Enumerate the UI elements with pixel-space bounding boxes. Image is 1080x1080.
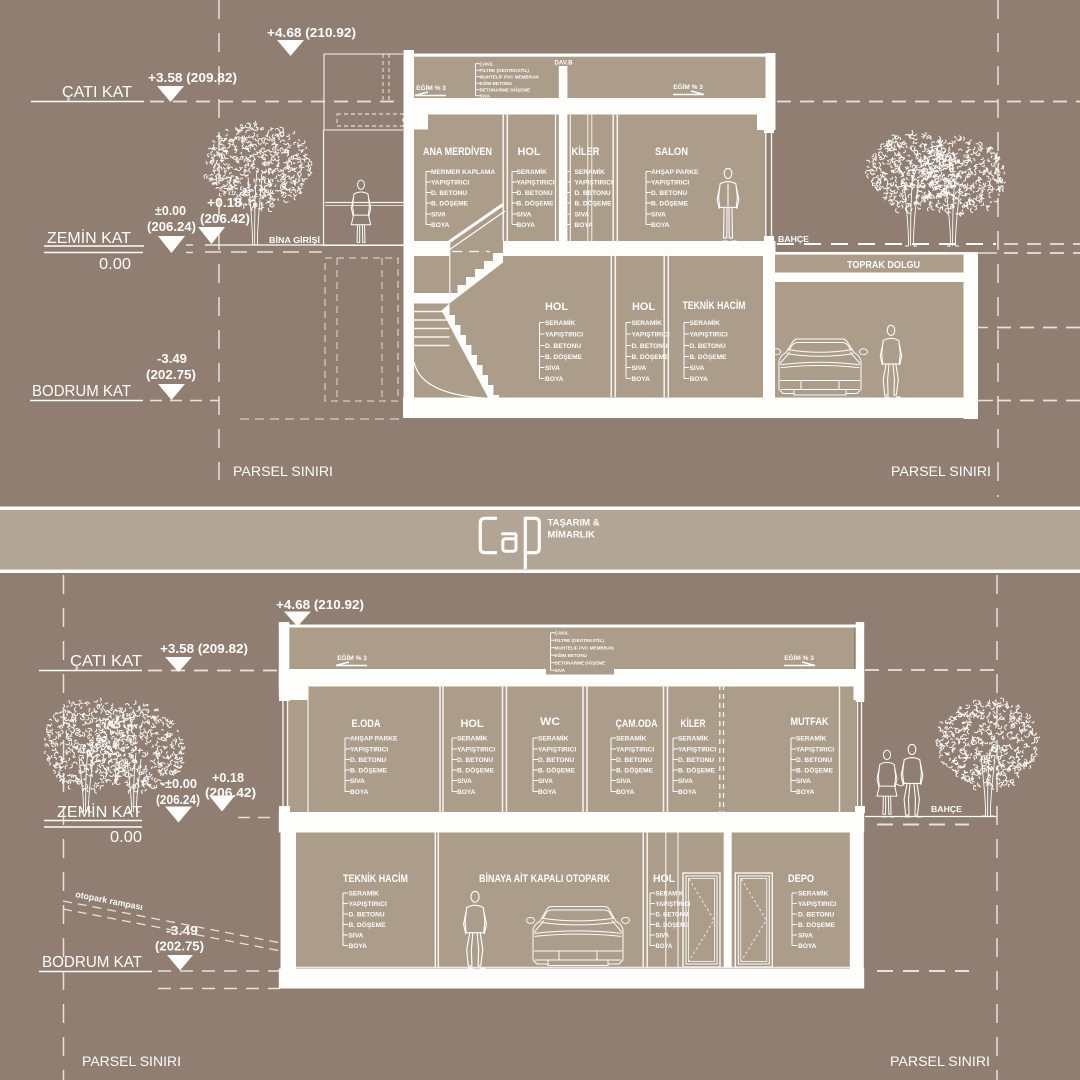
- svg-text:SIVA: SIVA: [545, 365, 560, 372]
- svg-text:B. DÖŞEME: B. DÖŞEME: [538, 766, 576, 775]
- svg-text:SIVA: SIVA: [457, 778, 472, 785]
- svg-text:ÇATI KAT: ÇATI KAT: [62, 84, 133, 101]
- svg-text:SIVA: SIVA: [480, 94, 491, 99]
- svg-text:ÇAKIL: ÇAKIL: [480, 62, 494, 67]
- svg-text:YAPIŞTIRICI: YAPIŞTIRICI: [798, 901, 836, 908]
- svg-text:(206.42): (206.42): [200, 211, 250, 226]
- svg-text:SIVA: SIVA: [350, 778, 365, 785]
- svg-text:BOYA: BOYA: [431, 222, 450, 229]
- svg-text:BOYA: BOYA: [678, 789, 697, 796]
- svg-text:SERAMİK: SERAMİK: [517, 168, 548, 176]
- svg-text:HOL: HOL: [545, 301, 568, 313]
- svg-text:SERAMİK: SERAMİK: [349, 890, 380, 898]
- svg-text:BOYA: BOYA: [517, 222, 536, 229]
- svg-text:FİLTRE (GEOTEKSTİL): FİLTRE (GEOTEKSTİL): [555, 637, 605, 643]
- svg-text:EĞİM % 3: EĞİM % 3: [416, 83, 446, 92]
- svg-text:HOL: HOL: [518, 146, 541, 158]
- svg-text:B. DÖŞEME: B. DÖŞEME: [656, 922, 690, 929]
- svg-text:MUTFAK: MUTFAK: [791, 716, 829, 728]
- svg-text:PARSEL SINIRI: PARSEL SINIRI: [82, 1053, 181, 1069]
- svg-text:B. DÖŞEME: B. DÖŞEME: [349, 920, 387, 929]
- svg-text:FİLTRE (GEOTEKSTİL): FİLTRE (GEOTEKSTİL): [480, 67, 530, 73]
- svg-text:BOYA: BOYA: [651, 222, 670, 229]
- svg-text:+4.68 (210.92): +4.68 (210.92): [267, 25, 356, 40]
- svg-text:PARSEL SINIRI: PARSEL SINIRI: [891, 463, 991, 479]
- svg-text:BAHÇE: BAHÇE: [931, 804, 962, 814]
- svg-text:SERAMİK: SERAMİK: [457, 735, 488, 743]
- svg-text:EĞİM % 3: EĞİM % 3: [784, 653, 814, 662]
- svg-text:YAPIŞTIRICI: YAPIŞTIRICI: [678, 747, 716, 754]
- svg-text:D. BETONU: D. BETONU: [690, 343, 726, 350]
- svg-text:SIVA: SIVA: [517, 212, 532, 219]
- svg-text:B. DÖŞEME: B. DÖŞEME: [457, 766, 495, 775]
- svg-text:BİNA GİRİŞİ: BİNA GİRİŞİ: [269, 235, 320, 245]
- svg-text:SERAMİK: SERAMİK: [545, 319, 576, 327]
- svg-text:+3.58 (209.82): +3.58 (209.82): [148, 70, 237, 85]
- svg-text:±0.00: ±0.00: [165, 776, 197, 791]
- svg-text:TEKNİK HACİM: TEKNİK HACİM: [343, 872, 408, 885]
- svg-text:YAPIŞTIRICI: YAPIŞTIRICI: [517, 180, 555, 187]
- svg-text:SIVA: SIVA: [656, 934, 670, 940]
- svg-text:0.00: 0.00: [110, 829, 142, 846]
- svg-text:D. BETONU: D. BETONU: [538, 757, 574, 764]
- svg-text:SERAMİK: SERAMİK: [656, 891, 684, 898]
- svg-text:BOYA: BOYA: [349, 943, 368, 950]
- svg-text:BOYA: BOYA: [616, 789, 635, 796]
- svg-text:(206.24): (206.24): [147, 219, 196, 234]
- svg-text:YAPIŞTIRICI: YAPIŞTIRICI: [349, 901, 387, 908]
- svg-text:SERAMİK: SERAMİK: [575, 168, 606, 176]
- svg-text:D. BETONU: D. BETONU: [545, 343, 581, 350]
- svg-text:BETONARME DÖŞEME: BETONARME DÖŞEME: [480, 87, 531, 93]
- svg-text:D. BETONU: D. BETONU: [798, 912, 834, 919]
- svg-text:YAPIŞTIRICI: YAPIŞTIRICI: [651, 180, 689, 187]
- svg-text:D. BETONU: D. BETONU: [457, 757, 493, 764]
- svg-text:B. DÖŞEME: B. DÖŞEME: [616, 766, 654, 775]
- svg-text:SIVA: SIVA: [431, 212, 446, 219]
- svg-text:EĞİM BETONU: EĞİM BETONU: [480, 79, 513, 86]
- svg-text:D. BETONU: D. BETONU: [678, 757, 714, 764]
- svg-text:B. DÖŞEME: B. DÖŞEME: [545, 352, 583, 361]
- svg-text:D. BETONU: D. BETONU: [575, 190, 611, 197]
- svg-text:YAPIŞTIRICI: YAPIŞTIRICI: [616, 747, 654, 754]
- svg-text:YAPIŞTIRICI: YAPIŞTIRICI: [575, 180, 613, 187]
- svg-text:ZEMİN KAT: ZEMİN KAT: [47, 229, 132, 247]
- svg-text:SERAMİK: SERAMİK: [798, 890, 829, 898]
- svg-text:SIVA: SIVA: [690, 365, 705, 372]
- svg-text:D. BETONU: D. BETONU: [651, 190, 687, 197]
- svg-text:YAPIŞTIRICI: YAPIŞTIRICI: [457, 747, 495, 754]
- svg-text:BOYA: BOYA: [545, 376, 564, 383]
- svg-text:+3.58 (209.82): +3.58 (209.82): [160, 641, 248, 656]
- svg-text:ÇAKIL: ÇAKIL: [555, 631, 569, 636]
- svg-text:BOYA: BOYA: [796, 789, 815, 796]
- svg-text:SIVA: SIVA: [798, 933, 813, 940]
- svg-text:-3.49: -3.49: [166, 923, 198, 938]
- svg-text:MUHTELİF PVC MEMBRAN: MUHTELİF PVC MEMBRAN: [555, 645, 615, 651]
- svg-text:SERAMİK: SERAMİK: [678, 735, 709, 743]
- svg-text:ANA MERDİVEN: ANA MERDİVEN: [423, 145, 492, 158]
- svg-text:YAPIŞTIRICI: YAPIŞTIRICI: [545, 332, 583, 339]
- svg-text:SERAMİK: SERAMİK: [616, 735, 647, 743]
- svg-text:BOYA: BOYA: [350, 789, 369, 796]
- svg-text:ÇAM.ODA: ÇAM.ODA: [616, 718, 658, 730]
- svg-text:D. BETONU: D. BETONU: [796, 757, 832, 764]
- svg-text:KİLER: KİLER: [681, 717, 706, 730]
- svg-text:SIVA: SIVA: [678, 778, 693, 785]
- svg-text:B. DÖŞEME: B. DÖŞEME: [350, 766, 388, 775]
- svg-text:BOYA: BOYA: [575, 222, 594, 229]
- svg-text:+0.18: +0.18: [212, 770, 244, 785]
- svg-text:SIVA: SIVA: [796, 778, 811, 785]
- svg-text:D. BETONU: D. BETONU: [349, 912, 385, 919]
- svg-text:(202.75): (202.75): [155, 939, 204, 954]
- svg-text:D. BETONU: D. BETONU: [517, 190, 553, 197]
- svg-text:AHŞAP PARKE: AHŞAP PARKE: [651, 169, 699, 176]
- svg-text:B. DÖŞEME: B. DÖŞEME: [690, 352, 728, 361]
- svg-text:±0.00: ±0.00: [155, 203, 186, 218]
- svg-text:D. BETONU: D. BETONU: [350, 757, 386, 764]
- svg-text:EĞİM % 3: EĞİM % 3: [673, 82, 703, 91]
- svg-text:SALON: SALON: [655, 146, 688, 158]
- svg-text:DAV.B: DAV.B: [555, 60, 573, 67]
- svg-text:SERAMİK: SERAMİK: [796, 735, 827, 743]
- svg-text:BOYA: BOYA: [656, 944, 673, 950]
- svg-text:B. DÖŞEME: B. DÖŞEME: [678, 766, 716, 775]
- svg-text:E.ODA: E.ODA: [352, 718, 381, 730]
- svg-text:-3.49: -3.49: [157, 351, 187, 366]
- svg-text:SIVA: SIVA: [555, 668, 566, 673]
- svg-text:WC: WC: [540, 716, 560, 728]
- svg-text:0.00: 0.00: [99, 256, 131, 273]
- svg-text:PARSEL SINIRI: PARSEL SINIRI: [233, 463, 333, 479]
- svg-text:MERMER KAPLAMA: MERMER KAPLAMA: [431, 169, 495, 176]
- svg-text:BOYA: BOYA: [690, 376, 709, 383]
- svg-text:DEPO: DEPO: [788, 873, 814, 885]
- svg-text:B. DÖŞEME: B. DÖŞEME: [575, 199, 613, 208]
- svg-text:YAPIŞTIRICI: YAPIŞTIRICI: [350, 747, 388, 754]
- svg-text:SERAMİK: SERAMİK: [632, 319, 663, 327]
- svg-text:BOYA: BOYA: [632, 376, 651, 383]
- svg-text:ÇATI KAT: ÇATI KAT: [70, 653, 143, 670]
- svg-text:BİNAYA AİT KAPALI OTOPARK: BİNAYA AİT KAPALI OTOPARK: [479, 872, 610, 885]
- svg-text:SIVA: SIVA: [538, 778, 553, 785]
- svg-text:TEKNİK HACİM: TEKNİK HACİM: [683, 299, 746, 312]
- svg-text:YAPIŞTIRICI: YAPIŞTIRICI: [796, 747, 834, 754]
- svg-text:B. DÖŞEME: B. DÖŞEME: [431, 199, 469, 208]
- svg-text:HOL: HOL: [653, 873, 675, 885]
- svg-text:HOL: HOL: [632, 301, 655, 313]
- svg-text:D. BETONU: D. BETONU: [616, 757, 652, 764]
- svg-text:D. BETONU: D. BETONU: [632, 343, 668, 350]
- svg-text:BOYA: BOYA: [538, 789, 557, 796]
- svg-text:SIVA: SIVA: [616, 778, 631, 785]
- svg-text:BOYA: BOYA: [798, 943, 817, 950]
- svg-text:B. DÖŞEME: B. DÖŞEME: [517, 199, 555, 208]
- svg-text:B. DÖŞEME: B. DÖŞEME: [798, 920, 836, 929]
- svg-text:BAHÇE: BAHÇE: [778, 234, 809, 244]
- svg-text:PARSEL SINIRI: PARSEL SINIRI: [890, 1053, 990, 1069]
- svg-text:YAPIŞTIRICI: YAPIŞTIRICI: [538, 747, 576, 754]
- svg-text:BOYA: BOYA: [457, 789, 476, 796]
- svg-text:SIVA: SIVA: [632, 365, 647, 372]
- svg-text:D. BETONU: D. BETONU: [431, 190, 467, 197]
- svg-text:BODRUM KAT: BODRUM KAT: [42, 954, 143, 971]
- svg-text:B. DÖŞEME: B. DÖŞEME: [796, 766, 834, 775]
- svg-text:HOL: HOL: [461, 718, 484, 730]
- svg-text:AHŞAP PARKE: AHŞAP PARKE: [350, 736, 398, 743]
- svg-text:SIVA: SIVA: [349, 933, 364, 940]
- svg-text:KİLER: KİLER: [572, 145, 600, 158]
- svg-text:SERAMİK: SERAMİK: [690, 319, 721, 327]
- svg-text:SIVA: SIVA: [651, 212, 666, 219]
- svg-text:EĞİM % 3: EĞİM % 3: [337, 653, 367, 662]
- svg-text:MİMARLIK: MİMARLIK: [548, 530, 596, 541]
- svg-text:+4.68 (210.92): +4.68 (210.92): [276, 597, 364, 612]
- svg-text:YAPIŞTIRICI: YAPIŞTIRICI: [431, 180, 469, 187]
- svg-text:BODRUM KAT: BODRUM KAT: [32, 383, 132, 400]
- svg-text:EĞİM BETONU: EĞİM BETONU: [555, 651, 588, 658]
- svg-text:(206.24): (206.24): [156, 792, 200, 807]
- svg-text:YAPIŞTIRICI: YAPIŞTIRICI: [656, 902, 691, 908]
- svg-text:YAPIŞTIRICI: YAPIŞTIRICI: [690, 332, 728, 339]
- svg-text:(202.75): (202.75): [146, 367, 196, 382]
- svg-text:TOPRAK DOLGU: TOPRAK DOLGU: [847, 260, 920, 271]
- svg-text:MUHTELİF PVC MEMBRAN: MUHTELİF PVC MEMBRAN: [480, 74, 540, 80]
- svg-text:B. DÖŞEME: B. DÖŞEME: [651, 199, 689, 208]
- svg-text:SERAMİK: SERAMİK: [538, 735, 569, 743]
- svg-text:TAŞARIM &: TAŞARIM &: [548, 518, 600, 529]
- svg-text:BETONARME DÖŞEME: BETONARME DÖŞEME: [555, 660, 606, 666]
